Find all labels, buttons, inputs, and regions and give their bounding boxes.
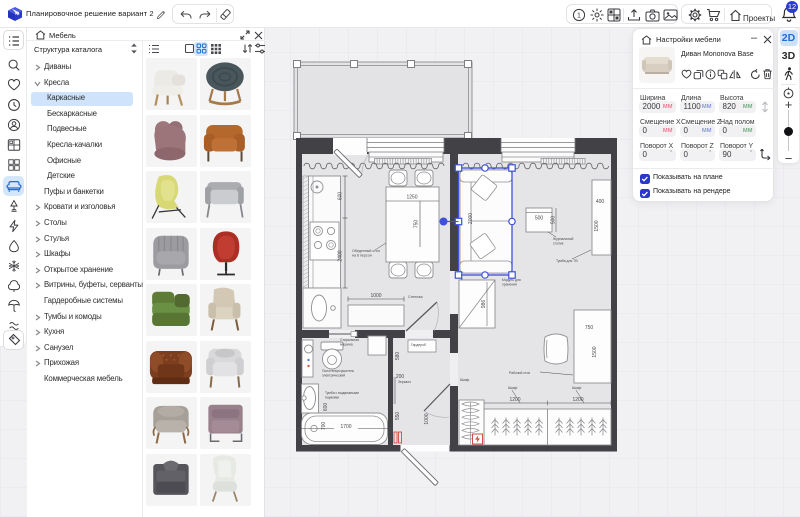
svg-text:600: 600 xyxy=(338,192,344,201)
svg-text:Стеллаж: Стеллаж xyxy=(408,295,423,299)
svg-text:Стиральная: Стиральная xyxy=(340,338,359,342)
svg-text:1200: 1200 xyxy=(509,397,520,403)
svg-text:Шкаф: Шкаф xyxy=(508,386,518,390)
svg-text:Журнальный: Журнальный xyxy=(553,237,573,241)
svg-text:Полотенцесушитель: Полотенцесушитель xyxy=(322,369,354,373)
svg-text:2400: 2400 xyxy=(338,250,344,261)
svg-text:400: 400 xyxy=(596,199,605,205)
svg-text:1700: 1700 xyxy=(340,424,351,430)
svg-text:580: 580 xyxy=(395,352,401,361)
svg-text:1000: 1000 xyxy=(370,293,381,299)
svg-text:Рабочий стол: Рабочий стол xyxy=(509,371,530,375)
svg-text:1: 1 xyxy=(577,13,581,20)
svg-text:на 6 персон: на 6 персон xyxy=(352,254,372,258)
svg-text:Зеркало: Зеркало xyxy=(398,380,411,384)
svg-text:хранения: хранения xyxy=(502,283,517,287)
svg-text:столик: столик xyxy=(553,242,564,246)
svg-text:500: 500 xyxy=(535,216,544,222)
svg-text:Тумба с выдвижными: Тумба с выдвижными xyxy=(325,391,359,395)
svg-text:1000: 1000 xyxy=(424,413,430,424)
svg-text:550: 550 xyxy=(395,412,401,421)
svg-text:Гардероб: Гардероб xyxy=(411,343,426,347)
svg-text:электрический: электрический xyxy=(322,374,345,378)
svg-text:1500: 1500 xyxy=(594,220,600,231)
svg-text:машина: машина xyxy=(340,343,353,347)
svg-text:500: 500 xyxy=(551,216,557,225)
svg-text:986: 986 xyxy=(481,300,487,309)
svg-text:Шкаф: Шкаф xyxy=(572,386,582,390)
svg-text:1500: 1500 xyxy=(592,346,598,357)
svg-text:Шкаф: Шкаф xyxy=(460,378,470,382)
svg-text:2000: 2000 xyxy=(468,213,474,224)
svg-text:600: 600 xyxy=(323,403,329,412)
svg-text:750: 750 xyxy=(414,220,420,229)
svg-text:700: 700 xyxy=(321,422,327,431)
svg-text:Модуль для: Модуль для xyxy=(502,278,521,282)
svg-text:1250: 1250 xyxy=(406,195,417,201)
svg-text:ящиками: ящиками xyxy=(325,396,339,400)
svg-text:Тумба для ТВ: Тумба для ТВ xyxy=(556,259,578,263)
svg-text:750: 750 xyxy=(585,325,594,331)
